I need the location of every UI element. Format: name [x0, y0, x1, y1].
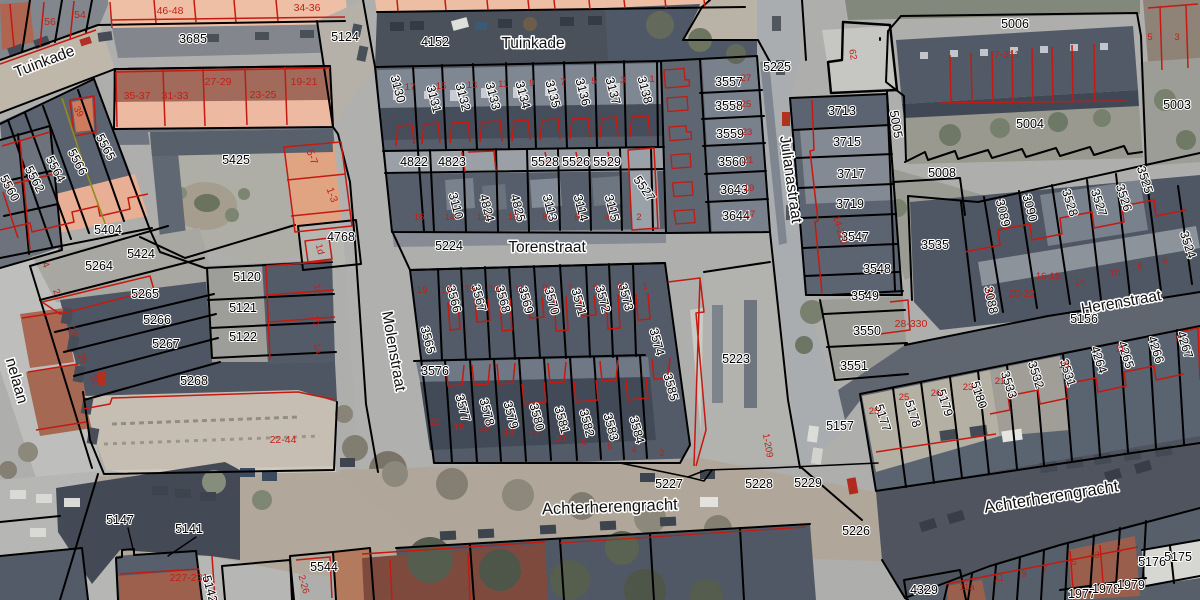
svg-text:5266: 5266 — [143, 313, 171, 327]
svg-text:5267: 5267 — [152, 337, 180, 351]
svg-text:62: 62 — [846, 48, 859, 60]
svg-text:1: 1 — [642, 281, 647, 292]
svg-text:17: 17 — [441, 285, 452, 296]
svg-text:20: 20 — [430, 417, 441, 428]
svg-text:5141: 5141 — [175, 522, 203, 536]
svg-text:5176: 5176 — [1138, 555, 1166, 569]
svg-text:7: 7 — [1042, 564, 1047, 575]
svg-text:20-22: 20-22 — [1009, 289, 1035, 300]
svg-text:14: 14 — [504, 427, 515, 438]
svg-text:5229: 5229 — [794, 476, 822, 490]
svg-text:2: 2 — [659, 448, 664, 459]
svg-text:27: 27 — [741, 73, 752, 84]
svg-text:8: 8 — [1137, 261, 1142, 272]
svg-text:21: 21 — [995, 376, 1006, 387]
svg-text:54: 54 — [74, 9, 86, 21]
svg-text:14: 14 — [1075, 277, 1086, 288]
svg-text:4768: 4768 — [327, 230, 355, 244]
svg-text:3551: 3551 — [840, 359, 868, 373]
svg-text:5225: 5225 — [763, 60, 791, 74]
svg-text:4329: 4329 — [910, 583, 938, 597]
svg-text:4: 4 — [604, 212, 609, 223]
svg-text:27-29: 27-29 — [205, 76, 232, 88]
svg-text:13: 13 — [467, 80, 478, 91]
svg-text:6: 6 — [607, 441, 612, 452]
svg-text:25: 25 — [869, 406, 880, 417]
svg-text:13: 13 — [489, 284, 500, 295]
svg-text:11: 11 — [994, 573, 1004, 584]
svg-text:9: 9 — [1021, 569, 1026, 580]
svg-text:4822: 4822 — [400, 155, 428, 169]
svg-text:15: 15 — [465, 284, 476, 295]
svg-text:5: 5 — [592, 282, 597, 293]
svg-text:5544: 5544 — [310, 560, 338, 574]
svg-text:5528: 5528 — [531, 155, 559, 169]
svg-text:4: 4 — [631, 445, 636, 456]
svg-text:17: 17 — [745, 209, 756, 220]
svg-text:5175: 5175 — [1164, 550, 1192, 564]
svg-text:5156: 5156 — [1070, 312, 1098, 326]
svg-text:11: 11 — [514, 284, 524, 295]
svg-text:12: 12 — [529, 430, 540, 441]
svg-text:5228: 5228 — [745, 477, 773, 491]
svg-text:5227: 5227 — [655, 477, 683, 491]
svg-text:3557: 3557 — [715, 75, 743, 89]
svg-text:6: 6 — [574, 212, 579, 223]
svg-text:26: 26 — [931, 388, 942, 399]
svg-text:18: 18 — [454, 422, 465, 433]
svg-text:5006: 5006 — [1001, 17, 1029, 31]
svg-text:5004: 5004 — [1016, 117, 1044, 131]
svg-text:5265: 5265 — [131, 287, 159, 301]
svg-text:2: 2 — [636, 212, 641, 223]
svg-text:3548: 3548 — [863, 262, 891, 276]
svg-text:23: 23 — [742, 127, 753, 138]
svg-text:3559: 3559 — [716, 127, 744, 141]
svg-text:35-37: 35-37 — [124, 90, 151, 102]
svg-text:10: 10 — [1110, 268, 1121, 279]
svg-text:5529: 5529 — [593, 155, 621, 169]
svg-text:22-44: 22-44 — [270, 434, 297, 446]
svg-text:9: 9 — [542, 283, 547, 294]
svg-text:3715: 3715 — [833, 135, 861, 149]
svg-text:23: 23 — [963, 382, 974, 393]
svg-text:5008: 5008 — [928, 166, 956, 180]
svg-text:31-33: 31-33 — [162, 90, 189, 102]
svg-text:3550: 3550 — [853, 324, 881, 338]
svg-text:1: 1 — [1116, 544, 1121, 555]
svg-text:1978: 1978 — [1092, 582, 1120, 596]
svg-text:46-48: 46-48 — [157, 5, 184, 17]
svg-text:5226: 5226 — [842, 524, 870, 538]
svg-text:10: 10 — [508, 212, 519, 223]
svg-text:3558: 3558 — [715, 99, 743, 113]
svg-text:5264: 5264 — [85, 259, 113, 273]
svg-text:14: 14 — [445, 212, 456, 223]
svg-text:7: 7 — [560, 77, 565, 88]
svg-text:5: 5 — [591, 76, 596, 87]
svg-text:5526: 5526 — [562, 155, 590, 169]
svg-text:28-330: 28-330 — [895, 318, 928, 330]
svg-text:15: 15 — [436, 81, 447, 92]
svg-text:8: 8 — [581, 437, 586, 448]
svg-text:5124: 5124 — [331, 30, 359, 44]
svg-text:3: 3 — [620, 75, 625, 86]
svg-text:16: 16 — [414, 212, 425, 223]
svg-text:7: 7 — [1174, 334, 1179, 345]
svg-text:5223: 5223 — [722, 352, 750, 366]
svg-text:3719: 3719 — [836, 197, 864, 211]
svg-text:25: 25 — [741, 99, 752, 110]
svg-text:21: 21 — [743, 155, 754, 166]
svg-text:19: 19 — [417, 285, 428, 296]
svg-text:5003: 5003 — [1163, 98, 1191, 112]
svg-text:11a: 11a — [959, 582, 975, 593]
svg-text:16: 16 — [479, 423, 490, 434]
svg-text:7: 7 — [567, 283, 572, 294]
svg-text:7-311: 7-311 — [994, 49, 1020, 61]
svg-text:19: 19 — [744, 183, 755, 194]
svg-text:3: 3 — [617, 282, 622, 293]
svg-text:5: 5 — [1071, 557, 1076, 568]
svg-text:25: 25 — [899, 392, 910, 403]
svg-text:12: 12 — [477, 212, 488, 223]
svg-text:5268: 5268 — [180, 374, 208, 388]
svg-text:3535: 3535 — [921, 238, 949, 252]
svg-text:Torenstraat: Torenstraat — [508, 239, 586, 256]
svg-text:5122: 5122 — [229, 330, 257, 344]
svg-text:3: 3 — [1094, 550, 1099, 561]
svg-text:9: 9 — [529, 78, 534, 89]
svg-text:19-21: 19-21 — [291, 76, 318, 88]
svg-text:5425: 5425 — [222, 153, 250, 167]
svg-text:23-25: 23-25 — [250, 89, 277, 101]
svg-text:3713: 3713 — [828, 104, 856, 118]
svg-text:5404: 5404 — [94, 223, 122, 237]
svg-text:5147: 5147 — [106, 513, 134, 527]
svg-text:3576: 3576 — [421, 364, 449, 378]
svg-text:6: 6 — [1162, 255, 1167, 266]
svg-text:16-18: 16-18 — [1036, 271, 1060, 282]
svg-text:34-36: 34-36 — [294, 2, 321, 14]
svg-text:5121: 5121 — [229, 301, 257, 315]
svg-text:17: 17 — [405, 82, 416, 93]
svg-text:4152: 4152 — [421, 35, 449, 49]
svg-text:3: 3 — [1174, 32, 1179, 43]
svg-text:5: 5 — [1147, 32, 1152, 43]
svg-text:5120: 5120 — [233, 270, 261, 284]
svg-text:10: 10 — [555, 433, 566, 444]
svg-text:11: 11 — [498, 79, 508, 90]
svg-text:56: 56 — [44, 16, 56, 28]
svg-text:11: 11 — [1115, 344, 1125, 355]
svg-text:227-231: 227-231 — [170, 572, 209, 584]
svg-text:3685: 3685 — [179, 32, 207, 46]
svg-text:1: 1 — [649, 74, 654, 85]
svg-text:Tuinkade: Tuinkade — [501, 35, 564, 52]
svg-text:4823: 4823 — [438, 155, 466, 169]
svg-text:3549: 3549 — [851, 289, 879, 303]
svg-text:8: 8 — [542, 212, 547, 223]
svg-text:1979: 1979 — [1117, 578, 1145, 592]
svg-text:15: 15 — [1059, 360, 1070, 371]
svg-text:5224: 5224 — [435, 239, 463, 253]
svg-text:5157: 5157 — [826, 419, 854, 433]
svg-text:3717: 3717 — [837, 167, 865, 181]
svg-text:5424: 5424 — [127, 247, 155, 261]
